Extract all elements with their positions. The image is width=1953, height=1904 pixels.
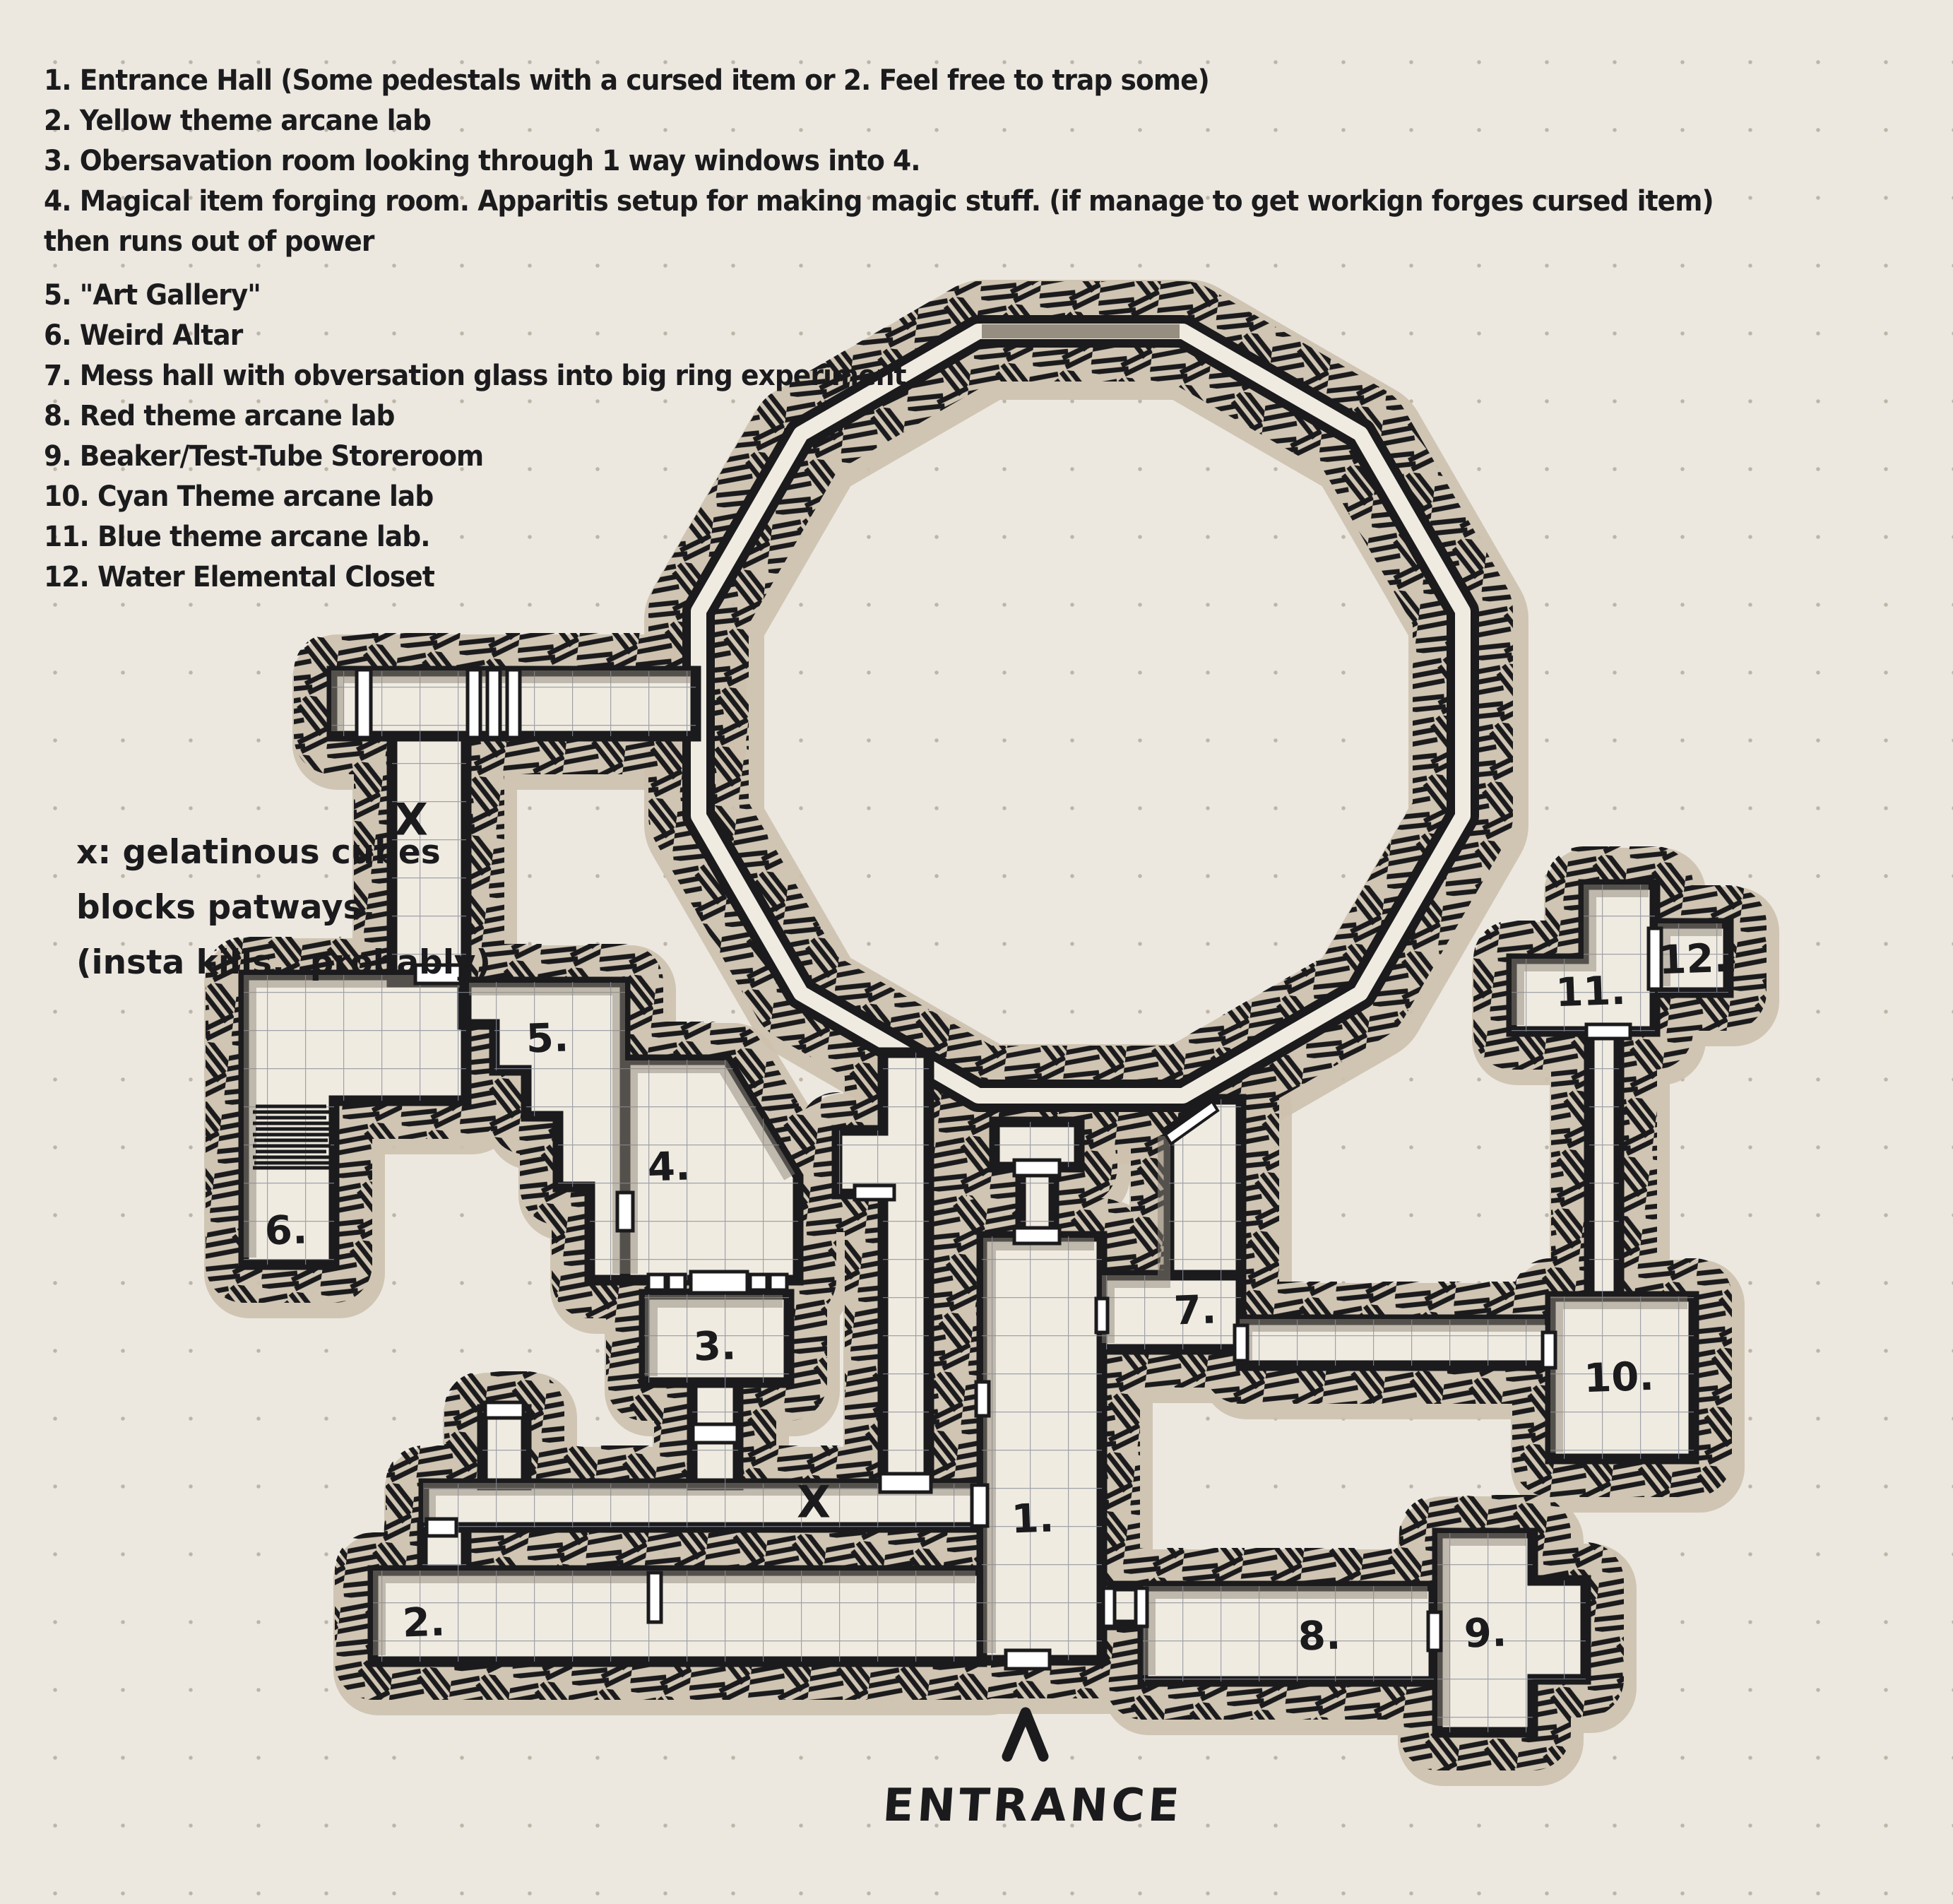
- legend-line: 10. Cyan Theme arcane lab: [44, 477, 1714, 517]
- room-label-4: 4.: [647, 1143, 691, 1190]
- x-note: x: gelatinous cubes blocks patways. (ins…: [76, 825, 491, 991]
- legend-line: 11. Blue theme arcane lab.: [44, 517, 1714, 557]
- room-label-3: 3.: [693, 1323, 737, 1370]
- room-label-12: 12.: [1658, 935, 1729, 983]
- legend-line: 9. Beaker/Test-Tube Storeroom: [44, 437, 1714, 477]
- legend-line: 5. "Art Gallery": [44, 276, 1714, 316]
- room-label-2: 2.: [402, 1599, 446, 1646]
- x-note-line: (insta kills...probably): [76, 935, 491, 991]
- room-label-10: 10.: [1583, 1354, 1654, 1402]
- entrance-arrow-icon: [1007, 1713, 1043, 1756]
- entrance-label: ENTRANCE: [881, 1780, 1184, 1832]
- legend-line: 12. Water Elemental Closet: [44, 557, 1714, 598]
- legend: 1. Entrance Hall (Some pedestals with a …: [44, 61, 1714, 598]
- legend-line: 2. Yellow theme arcane lab: [44, 101, 1714, 141]
- legend-line: 3. Obersavation room looking through 1 w…: [44, 141, 1714, 182]
- legend-line: 7. Mess hall with obversation glass into…: [44, 356, 1714, 396]
- x-mark-2: X: [797, 1477, 831, 1528]
- x-note-line: blocks patways.: [76, 880, 491, 935]
- room-label-8: 8.: [1298, 1612, 1341, 1660]
- legend-line: 8. Red theme arcane lab: [44, 396, 1714, 437]
- x-note-line: x: gelatinous cubes: [76, 825, 491, 880]
- x-mark-1: X: [394, 794, 428, 846]
- legend-line: 6. Weird Altar: [44, 316, 1714, 356]
- room-label-1: 1.: [1011, 1495, 1055, 1542]
- legend-line: 1. Entrance Hall (Some pedestals with a …: [44, 61, 1714, 101]
- legend-line: 4. Magical item forging room. Apparitis …: [44, 182, 1714, 222]
- room-label-9: 9.: [1464, 1609, 1507, 1657]
- room-label-5: 5.: [526, 1015, 569, 1062]
- legend-line: then runs out of power: [44, 222, 1714, 262]
- room-label-6: 6.: [264, 1207, 308, 1254]
- room-label-11: 11.: [1555, 968, 1626, 1016]
- dungeon-map-page: 1. Entrance Hall (Some pedestals with a …: [0, 0, 1953, 1904]
- room-label-7: 7.: [1173, 1287, 1217, 1334]
